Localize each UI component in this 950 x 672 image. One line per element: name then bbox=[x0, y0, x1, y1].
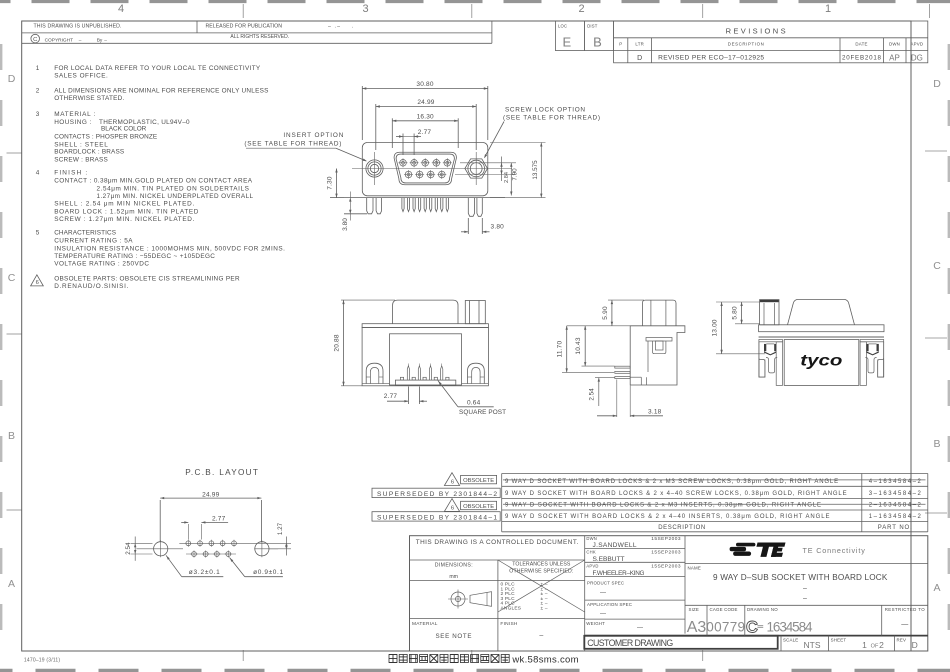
svg-text:1470–19 (3/11): 1470–19 (3/11) bbox=[24, 658, 60, 664]
svg-text:OBSOLETE: OBSOLETE bbox=[463, 504, 494, 510]
svg-text:PRODUCT SPEC: PRODUCT SPEC bbox=[587, 581, 624, 586]
svg-text:3.80: 3.80 bbox=[491, 224, 505, 231]
svg-text:E: E bbox=[562, 34, 571, 49]
svg-text:FOR LOCAL DATA REFER TO YOUR L: FOR LOCAL DATA REFER TO YOUR LOCAL TE CO… bbox=[54, 65, 261, 72]
svg-text:11.70: 11.70 bbox=[557, 341, 564, 358]
svg-text:1.27μm MIN. NICKEL UNDERPLATED: 1.27μm MIN. NICKEL UNDERPLATED OVERALL bbox=[97, 193, 254, 200]
svg-text:P: P bbox=[619, 42, 622, 47]
svg-text:S.EBBUTT: S.EBBUTT bbox=[593, 556, 625, 563]
svg-text:ø0.9±0.1: ø0.9±0.1 bbox=[253, 569, 283, 576]
svg-text:2.77: 2.77 bbox=[212, 516, 226, 523]
svg-text:–: – bbox=[539, 633, 543, 640]
svg-text:SHEET: SHEET bbox=[831, 637, 847, 642]
svg-text:TE Connectivity: TE Connectivity bbox=[803, 546, 866, 555]
svg-text:1.27: 1.27 bbox=[277, 522, 284, 535]
svg-text:ø3.2±0.1: ø3.2±0.1 bbox=[189, 569, 220, 576]
svg-text:2.84: 2.84 bbox=[504, 172, 510, 183]
svg-text:CURRENT RATING : 5A: CURRENT RATING : 5A bbox=[54, 238, 133, 245]
svg-text:2.77: 2.77 bbox=[384, 393, 398, 400]
svg-text:6: 6 bbox=[451, 480, 454, 486]
svg-text:BLACK COLOR: BLACK COLOR bbox=[101, 126, 147, 133]
svg-text:1634584: 1634584 bbox=[767, 620, 813, 635]
svg-text:B: B bbox=[933, 438, 940, 450]
svg-text:10.43: 10.43 bbox=[575, 337, 582, 354]
svg-text:REV: REV bbox=[897, 637, 907, 642]
svg-text:DRAWING NO: DRAWING NO bbox=[747, 607, 778, 612]
svg-text:PART NO.: PART NO. bbox=[878, 525, 912, 531]
svg-text:NTS: NTS bbox=[804, 640, 821, 650]
svg-text:CHARACTERISTICS: CHARACTERISTICS bbox=[54, 230, 116, 237]
svg-text:1: 1 bbox=[825, 3, 831, 15]
svg-text:2: 2 bbox=[578, 3, 584, 15]
svg-text:SALES OFFICE.: SALES OFFICE. bbox=[54, 73, 108, 80]
svg-text:ALL DIMENSIONS ARE NOMINAL FOR: ALL DIMENSIONS ARE NOMINAL FOR REFERENCE… bbox=[54, 88, 268, 95]
svg-text:13.00: 13.00 bbox=[712, 319, 719, 336]
svg-text:OBSOLETE PARTS: OBSOLETE CIS S: OBSOLETE PARTS: OBSOLETE CIS STREAMLININ… bbox=[54, 276, 240, 283]
svg-text:wk.58sms.com: wk.58sms.com bbox=[511, 654, 578, 665]
svg-text:INSULATION RESISTANCE : 1000MO: INSULATION RESISTANCE : 1000MOHMS MIN, 5… bbox=[54, 246, 285, 253]
svg-text:–: – bbox=[79, 39, 82, 44]
svg-text:DATE: DATE bbox=[855, 42, 867, 47]
svg-text:ANGLES: ANGLES bbox=[501, 606, 522, 612]
svg-text:(SEE TABLE FOR THREAD): (SEE TABLE FOR THREAD) bbox=[503, 115, 600, 122]
svg-text:7.30: 7.30 bbox=[327, 176, 334, 190]
svg-text:—: — bbox=[600, 590, 606, 596]
svg-text:REVISED PER ECO–17–012925: REVISED PER ECO–17–012925 bbox=[658, 54, 764, 61]
svg-text:B: B bbox=[593, 34, 602, 49]
svg-text:5.80: 5.80 bbox=[732, 306, 739, 320]
svg-text:CAGE CODE: CAGE CODE bbox=[710, 607, 738, 612]
svg-text:SUPERSEDED BY 2301844–1: SUPERSEDED BY 2301844–1 bbox=[377, 514, 497, 521]
svg-text:CUSTOMER DRAWING: CUSTOMER DRAWING bbox=[587, 638, 673, 648]
svg-text:═: ═ bbox=[757, 622, 764, 631]
svg-text:2: 2 bbox=[879, 640, 884, 650]
svg-text:± –: ± – bbox=[541, 606, 548, 612]
svg-text:SIZE: SIZE bbox=[689, 607, 700, 612]
svg-text:THIS DRAWING IS A CONTROLLED D: THIS DRAWING IS A CONTROLLED DOCUMENT. bbox=[416, 539, 579, 546]
svg-text:REVISIONS: REVISIONS bbox=[726, 27, 786, 36]
svg-text:24.99: 24.99 bbox=[202, 491, 219, 498]
svg-text:COPYRIGHT: COPYRIGHT bbox=[45, 38, 73, 44]
svg-text:D.RENAUD/O.SINISI.: D.RENAUD/O.SINISI. bbox=[54, 283, 128, 290]
svg-text:5.90: 5.90 bbox=[602, 306, 609, 320]
svg-text:24.99: 24.99 bbox=[417, 99, 434, 106]
svg-text:9 WAY D SOCKET WITH BOARD LOCK: 9 WAY D SOCKET WITH BOARD LOCKS & 2 x 4–… bbox=[505, 514, 830, 520]
svg-text:15SEP2003: 15SEP2003 bbox=[651, 550, 681, 556]
svg-text:AP: AP bbox=[889, 53, 900, 62]
svg-text:9 WAY D SOCKET WITH BOARD LOCK: 9 WAY D SOCKET WITH BOARD LOCKS & 2 x 4–… bbox=[505, 491, 847, 497]
svg-text:2.77: 2.77 bbox=[418, 129, 432, 136]
svg-text:A: A bbox=[933, 582, 940, 594]
svg-text:F.WHEELER–KING: F.WHEELER–KING bbox=[593, 570, 645, 577]
svg-text:(SEE TABLE FOR THREAD): (SEE TABLE FOR THREAD) bbox=[244, 140, 341, 147]
svg-text:4: 4 bbox=[118, 3, 124, 15]
svg-text:3.80: 3.80 bbox=[342, 218, 349, 231]
svg-text:CHK: CHK bbox=[586, 550, 595, 555]
svg-text:SEE NOTE: SEE NOTE bbox=[436, 633, 472, 640]
svg-text:SQUARE POST: SQUARE POST bbox=[459, 409, 506, 416]
svg-text:APVD: APVD bbox=[586, 564, 598, 569]
svg-text:tyco: tyco bbox=[800, 351, 842, 369]
svg-text:D: D bbox=[912, 640, 918, 650]
svg-text:9 WAY D SOCKET WITH BOARD LOCK: 9 WAY D SOCKET WITH BOARD LOCKS & 2 x M3… bbox=[505, 503, 821, 509]
svg-text:2: 2 bbox=[36, 88, 40, 95]
svg-text:DESCRIPTION: DESCRIPTION bbox=[728, 42, 764, 47]
svg-text:2–1634584–2: 2–1634584–2 bbox=[869, 503, 922, 509]
svg-text:BOARD LOCK : 1.52μm MIN. TIN P: BOARD LOCK : 1.52μm MIN. TIN PLATED bbox=[54, 208, 199, 215]
svg-text:SCALE: SCALE bbox=[783, 637, 798, 642]
svg-text:SCREW : BRASS: SCREW : BRASS bbox=[54, 156, 108, 163]
svg-text:1: 1 bbox=[862, 640, 867, 650]
svg-text:9 WAY D–SUB SOCKET WITH BOARD: 9 WAY D–SUB SOCKET WITH BOARD LOCK bbox=[713, 573, 888, 582]
svg-text:MATERIAL: MATERIAL bbox=[412, 621, 438, 627]
svg-text:3: 3 bbox=[362, 3, 368, 15]
svg-text:–: – bbox=[803, 585, 807, 592]
svg-text:7.90: 7.90 bbox=[512, 168, 519, 181]
svg-text:By: By bbox=[97, 38, 103, 44]
svg-text:D: D bbox=[8, 73, 16, 85]
svg-text:SCREW : 1.27μm MIN. NICKEL PLA: SCREW : 1.27μm MIN. NICKEL PLATED. bbox=[54, 216, 194, 223]
svg-text:OF: OF bbox=[871, 643, 879, 649]
svg-text:16.30: 16.30 bbox=[417, 113, 434, 120]
svg-text:DIMENSIONS:: DIMENSIONS: bbox=[435, 562, 473, 568]
svg-text:A: A bbox=[8, 578, 15, 590]
svg-text:OTHERWISE SPECIFIED:: OTHERWISE SPECIFIED: bbox=[509, 568, 573, 574]
svg-text:mm: mm bbox=[449, 574, 458, 580]
svg-text:SUPERSEDED BY 2301844–2: SUPERSEDED BY 2301844–2 bbox=[377, 491, 497, 498]
svg-text:C: C bbox=[746, 618, 758, 636]
svg-text:BOARDLOCK : BRASS: BOARDLOCK : BRASS bbox=[54, 149, 124, 156]
svg-text:3: 3 bbox=[36, 111, 40, 118]
svg-text:OTHERWISE STATED.: OTHERWISE STATED. bbox=[54, 95, 124, 102]
svg-text:A3: A3 bbox=[687, 619, 707, 636]
svg-text:SHELL : 2.54 μm MIN NICKEL PLA: SHELL : 2.54 μm MIN NICKEL PLATED. bbox=[54, 201, 194, 208]
svg-text:INSERT OPTION: INSERT OPTION bbox=[283, 132, 343, 139]
svg-text:DESCRIPTION: DESCRIPTION bbox=[658, 525, 705, 531]
svg-text:DIST: DIST bbox=[587, 23, 598, 28]
svg-text:—: — bbox=[637, 626, 643, 632]
svg-text:30.80: 30.80 bbox=[416, 81, 433, 88]
svg-text:D: D bbox=[933, 78, 941, 90]
svg-text:ALL RIGHTS RESERVED.: ALL RIGHTS RESERVED. bbox=[230, 34, 289, 40]
svg-text:SHELL : STEEL: SHELL : STEEL bbox=[54, 141, 108, 148]
svg-text:TEMPERATURE RATING : −55DEGC ~: TEMPERATURE RATING : −55DEGC ~ +105DEGC bbox=[54, 253, 215, 260]
svg-text:13.575: 13.575 bbox=[532, 160, 539, 180]
svg-text:WEIGHT: WEIGHT bbox=[586, 621, 605, 626]
svg-text:1: 1 bbox=[36, 65, 40, 72]
svg-text:CONTACTS : PHOSPER BRONZE: CONTACTS : PHOSPER BRONZE bbox=[54, 134, 157, 141]
svg-text:6: 6 bbox=[36, 280, 39, 286]
svg-text:–: – bbox=[803, 596, 807, 603]
svg-text:RELEASED FOR PUBLICATION: RELEASED FOR PUBLICATION bbox=[206, 23, 283, 29]
svg-text:1–1634584–2: 1–1634584–2 bbox=[869, 514, 922, 520]
svg-text:20FEB2018: 20FEB2018 bbox=[842, 54, 882, 61]
svg-text:THIS DRAWING IS UNPUBLISHED.: THIS DRAWING IS UNPUBLISHED. bbox=[34, 23, 122, 29]
svg-text:2.54: 2.54 bbox=[589, 388, 596, 401]
svg-text:TOLERANCES UNLESS: TOLERANCES UNLESS bbox=[512, 562, 571, 568]
svg-text:4: 4 bbox=[36, 170, 40, 177]
svg-text:RESTRICTED TO: RESTRICTED TO bbox=[885, 607, 926, 612]
svg-text:C: C bbox=[8, 272, 16, 284]
svg-text:C: C bbox=[933, 260, 941, 272]
svg-text:APVD: APVD bbox=[911, 42, 924, 47]
svg-text:D: D bbox=[637, 55, 642, 62]
svg-text:3.18: 3.18 bbox=[648, 409, 662, 416]
svg-text:15SEP2003: 15SEP2003 bbox=[651, 564, 681, 570]
svg-text:6: 6 bbox=[451, 506, 454, 512]
svg-text:15SEP2003: 15SEP2003 bbox=[651, 536, 681, 542]
svg-text:SCREW LOCK OPTION: SCREW LOCK OPTION bbox=[505, 107, 585, 114]
svg-text:—: — bbox=[901, 622, 908, 629]
svg-text:CONTACT : 0.38μm MIN.GOLD PLAT: CONTACT : 0.38μm MIN.GOLD PLATED ON CONT… bbox=[54, 178, 253, 185]
svg-text:APPLICATION SPEC: APPLICATION SPEC bbox=[587, 602, 632, 607]
svg-text:DWN: DWN bbox=[586, 536, 597, 541]
svg-text:00779: 00779 bbox=[706, 620, 745, 635]
svg-text:2.54: 2.54 bbox=[125, 542, 132, 555]
svg-text:3–1634584–2: 3–1634584–2 bbox=[869, 491, 922, 497]
svg-text:20.88: 20.88 bbox=[333, 334, 340, 351]
svg-text:—: — bbox=[600, 611, 606, 617]
svg-text:MATERIAL :: MATERIAL : bbox=[54, 111, 95, 118]
svg-text:C: C bbox=[33, 37, 37, 43]
svg-text:P.C.B. LAYOUT: P.C.B. LAYOUT bbox=[185, 468, 258, 477]
svg-text:–: – bbox=[104, 39, 107, 44]
svg-text:FINISH :: FINISH : bbox=[54, 170, 87, 177]
svg-text:HOUSING :: HOUSING : bbox=[54, 119, 91, 126]
svg-text:DG: DG bbox=[911, 53, 923, 62]
svg-text:5: 5 bbox=[36, 230, 40, 237]
svg-text:OBSOLETE: OBSOLETE bbox=[463, 478, 494, 484]
svg-text:2.54μm MIN. TIN PLATED ON SOLD: 2.54μm MIN. TIN PLATED ON SOLDERTAILS bbox=[97, 185, 249, 192]
svg-text:NAME: NAME bbox=[688, 565, 702, 570]
svg-text:LOC: LOC bbox=[558, 23, 567, 28]
svg-text:0.64: 0.64 bbox=[467, 400, 481, 407]
svg-text:FINISH: FINISH bbox=[500, 621, 518, 627]
svg-text:– .–: – .– bbox=[328, 23, 340, 29]
svg-text:J.SANDWELL: J.SANDWELL bbox=[593, 542, 637, 549]
svg-text:VOLTAGE RATING : 250VDC: VOLTAGE RATING : 250VDC bbox=[54, 260, 149, 267]
svg-text:DWN: DWN bbox=[889, 42, 900, 47]
svg-text:.: . bbox=[352, 23, 353, 29]
svg-text:B: B bbox=[8, 430, 15, 442]
svg-text:LTR: LTR bbox=[635, 42, 644, 47]
